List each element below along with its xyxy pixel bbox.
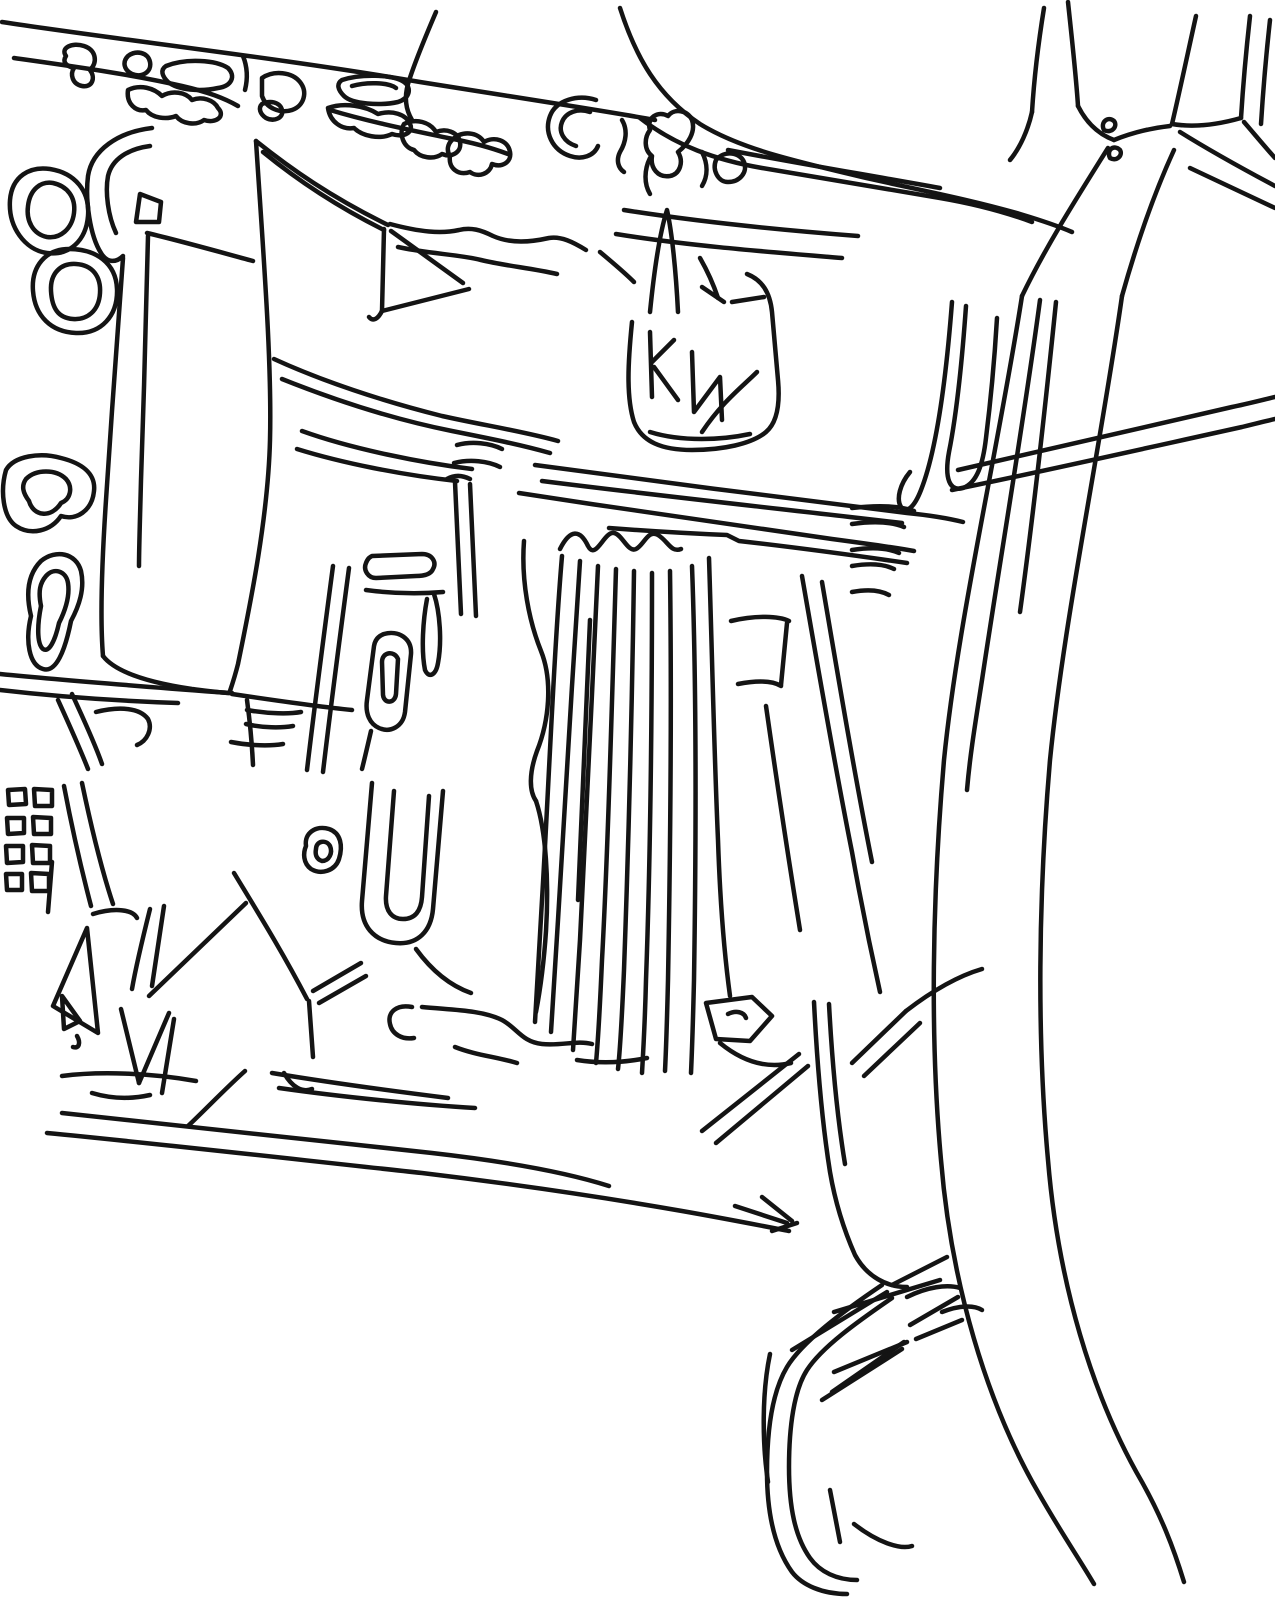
stroke-upper-left-hook-and-wedge-10 — [369, 311, 382, 319]
region-left-tree-blobs — [3, 455, 150, 769]
stroke-center-road-band-2 — [302, 431, 472, 469]
stroke-left-tree-blobs-6 — [96, 709, 150, 745]
stroke-bottom-long-roads-1 — [47, 1133, 789, 1231]
region-bottom-right-loop — [764, 1285, 982, 1594]
stroke-bottom-left-zigzags-3 — [73, 1036, 79, 1047]
stroke-small-buildings-grid-0 — [8, 789, 26, 805]
stroke-east-yard-block-6 — [781, 623, 787, 685]
stroke-center-road-band-1 — [282, 379, 550, 453]
stroke-right-mid-roads-0 — [958, 397, 1275, 470]
stroke-bottom-left-zigzags-10 — [234, 873, 307, 999]
stroke-right-sidings-upper-4 — [852, 590, 889, 595]
stroke-top-center-sweeping-road-0 — [620, 8, 1072, 232]
stroke-left-field-block-1 — [139, 236, 148, 566]
stroke-rail-fan-8 — [642, 573, 652, 1073]
stroke-center-left-structures-11 — [386, 791, 429, 919]
stroke-left-field-block-0 — [102, 258, 123, 656]
stroke-right-highway-3 — [1020, 302, 1056, 612]
stroke-bottom-left-zigzags-16 — [62, 1073, 196, 1081]
stroke-bottom-left-zigzags-11 — [309, 1001, 313, 1057]
stroke-bottom-right-sidings-3 — [916, 1320, 962, 1339]
stroke-yard-bottom-splays-5 — [720, 1043, 791, 1065]
stroke-top-strip-vegetation-2 — [162, 61, 232, 90]
stroke-upper-left-hook-and-wedge-11 — [382, 289, 469, 311]
stroke-center-left-structures-6 — [382, 653, 398, 701]
region-yard-bottom-splays — [706, 969, 982, 1076]
stroke-bottom-center-misc-3 — [455, 1047, 517, 1063]
stroke-top-strip-vegetation-8 — [352, 83, 396, 88]
stroke-building-cluster-5 — [652, 340, 674, 362]
stroke-building-cluster-4 — [650, 332, 652, 397]
stroke-small-buildings-grid-3 — [33, 817, 51, 834]
edge-traced-map-page — [0, 0, 1275, 1600]
stroke-left-tree-blobs-4 — [58, 700, 88, 769]
stroke-top-strip-vegetation-7 — [338, 76, 408, 104]
stroke-top-right-fork-13 — [1190, 168, 1275, 208]
region-rail-fan — [523, 533, 695, 1073]
stroke-upper-left-hook-and-wedge-3 — [147, 233, 253, 261]
stroke-bottom-right-loop-8 — [854, 1524, 912, 1547]
stroke-top-right-fork-6 — [1261, 20, 1270, 124]
stroke-center-left-structures-0 — [365, 554, 434, 578]
stroke-small-buildings-grid-1 — [34, 789, 52, 806]
stroke-top-strip-vegetation-1 — [125, 53, 151, 76]
stroke-east-yard-block-1 — [802, 576, 880, 992]
stroke-bottom-left-zigzags-2 — [62, 996, 80, 1029]
stroke-yard-bottom-splays-1 — [728, 1012, 746, 1018]
stroke-east-yard-block-5 — [738, 682, 781, 686]
stroke-yard-bottom-splays-2 — [852, 1011, 906, 1063]
region-small-buildings-grid — [6, 783, 113, 906]
stroke-yard-bottom-splays-3 — [864, 1023, 920, 1076]
stroke-small-buildings-grid-4 — [6, 846, 23, 863]
stroke-top-right-fork-1 — [1068, 2, 1078, 106]
stroke-bottom-left-zigzags-17 — [92, 1093, 150, 1098]
stroke-center-road-band-0 — [274, 359, 558, 441]
stroke-right-wiggle-verticals-0 — [899, 302, 952, 510]
stroke-bottom-long-roads-2 — [272, 1073, 448, 1098]
region-east-yard-block — [709, 558, 880, 996]
region-bottom-left-zigzags — [48, 862, 366, 1098]
stroke-center-left-structures-12 — [416, 949, 471, 993]
stroke-center-left-structures-5 — [367, 633, 411, 730]
stroke-left-field-block-7 — [246, 724, 293, 727]
stroke-top-right-fork-4 — [1172, 16, 1196, 124]
stroke-upper-left-hook-and-wedge-4 — [230, 141, 270, 691]
stroke-top-right-fork-8 — [1172, 118, 1241, 126]
stroke-left-tree-blobs-5 — [72, 694, 102, 764]
stroke-top-strip-vegetation-13 — [561, 110, 590, 146]
stroke-building-cluster-8 — [702, 372, 757, 432]
stroke-top-right-fork-14 — [1022, 148, 1108, 296]
stroke-left-field-block-8 — [231, 742, 283, 745]
stroke-left-field-block-6 — [247, 710, 301, 713]
stroke-top-right-fork-0 — [1032, 8, 1044, 112]
region-top-right-fork — [1010, 2, 1275, 296]
region-right-highway — [934, 296, 1184, 1584]
stroke-top-right-fork-2 — [1010, 112, 1032, 160]
stroke-left-tree-blobs-1 — [23, 472, 70, 514]
stroke-left-field-block-4 — [0, 690, 178, 703]
stroke-center-road-band-8 — [457, 443, 502, 449]
stroke-upper-left-hook-and-wedge-9 — [382, 229, 384, 311]
region-upper-left-hook-and-wedge — [87, 128, 586, 691]
stroke-rail-fan-7 — [618, 571, 634, 1069]
region-top-strip-road — [2, 12, 655, 154]
stroke-right-highway-1 — [1040, 296, 1184, 1582]
stroke-upper-left-hook-and-wedge-7 — [390, 224, 586, 250]
stroke-bottom-left-zigzags-15 — [48, 862, 52, 912]
stroke-left-tree-blobs-0 — [3, 455, 94, 531]
stroke-center-left-structures-9 — [316, 842, 331, 861]
stroke-bottom-long-roads-11 — [829, 1004, 845, 1164]
stroke-building-cluster-2 — [600, 252, 634, 282]
stroke-top-right-fork-10 — [1109, 148, 1121, 160]
stroke-left-field-block-3 — [0, 674, 229, 693]
stroke-bottom-right-loop-6 — [942, 1306, 982, 1312]
stroke-east-yard-block-3 — [766, 706, 800, 930]
stroke-top-strip-road-3 — [406, 12, 436, 120]
stroke-bottom-left-zigzags-14 — [319, 976, 366, 1003]
stroke-center-left-structures-7 — [362, 731, 371, 769]
stroke-east-yard-block-4 — [731, 617, 789, 621]
region-right-wiggle-verticals — [899, 302, 997, 510]
stroke-center-road-band-11 — [455, 482, 461, 614]
stroke-center-road-band-12 — [470, 484, 476, 616]
stroke-center-left-structures-2 — [423, 594, 440, 675]
stroke-east-yard-block-0 — [709, 558, 730, 996]
stroke-bottom-long-roads-0 — [62, 1113, 609, 1186]
stroke-left-double-rings-3 — [51, 264, 100, 319]
stroke-upper-left-hook-and-wedge-2 — [136, 194, 161, 222]
stroke-top-right-fork-5 — [1241, 16, 1250, 118]
stroke-rail-fan-10 — [691, 566, 696, 1073]
stroke-top-strip-vegetation-14 — [618, 120, 626, 172]
stroke-bottom-center-misc-2 — [577, 1058, 647, 1062]
stroke-yard-bottom-splays-0 — [706, 997, 772, 1041]
stroke-top-right-fork-11 — [1244, 122, 1275, 158]
stroke-top-strip-vegetation-16 — [646, 158, 651, 194]
region-bottom-center-misc — [389, 1006, 647, 1063]
stroke-center-road-band-10 — [447, 476, 470, 479]
region-bottom-long-roads — [47, 1002, 907, 1287]
stroke-bottom-center-misc-1 — [422, 1007, 592, 1044]
stroke-top-strip-vegetation-5 — [262, 73, 304, 111]
stroke-small-buildings-grid-5 — [32, 845, 50, 863]
stroke-top-right-fork-3 — [1078, 106, 1114, 140]
stroke-building-cluster-11 — [650, 432, 750, 439]
region-left-field-block — [0, 236, 352, 765]
stroke-small-buildings-grid-7 — [31, 873, 49, 891]
stroke-top-right-fork-9 — [1103, 119, 1115, 131]
stroke-rail-fan-9 — [665, 571, 671, 1071]
stroke-bottom-long-roads-8 — [702, 1054, 799, 1131]
stroke-bottom-left-zigzags-0 — [93, 910, 137, 918]
stroke-bottom-long-roads-10 — [814, 1002, 907, 1287]
stroke-rail-fan-6 — [596, 569, 616, 1063]
stroke-rail-fan-0 — [560, 533, 681, 550]
stroke-top-strip-vegetation-17 — [702, 152, 707, 186]
stroke-top-right-fork-15 — [1122, 150, 1174, 296]
stroke-bottom-left-zigzags-4 — [132, 909, 150, 989]
stroke-bottom-right-loop-7 — [830, 1490, 840, 1542]
stroke-small-buildings-grid-6 — [6, 874, 22, 890]
stroke-bottom-center-misc-0 — [389, 1006, 414, 1038]
stroke-bottom-left-zigzags-13 — [313, 963, 361, 991]
region-top-center-sweeping-road — [616, 8, 1072, 258]
stroke-bottom-long-roads-9 — [716, 1066, 808, 1143]
stroke-building-cluster-6 — [654, 367, 678, 400]
stroke-building-cluster-1 — [650, 210, 678, 312]
stroke-top-strip-vegetation-3 — [243, 56, 247, 90]
stroke-left-double-rings-1 — [28, 183, 75, 238]
stroke-center-left-structures-8 — [304, 828, 341, 872]
stroke-left-tree-blobs-3 — [38, 571, 68, 650]
stroke-center-left-structures-1 — [366, 590, 443, 593]
edge-map-canvas — [0, 0, 1275, 1600]
stroke-bottom-left-zigzags-5 — [152, 906, 164, 986]
stroke-rail-fan-1 — [523, 541, 548, 801]
stroke-top-center-sweeping-road-4 — [616, 234, 842, 258]
stroke-building-cluster-9 — [732, 297, 764, 302]
stroke-right-sidings-upper-3 — [852, 564, 894, 569]
stroke-center-road-band-5 — [542, 481, 902, 523]
region-center-left-structures — [304, 554, 471, 993]
stroke-top-right-fork-7 — [1114, 126, 1170, 140]
stroke-upper-left-hook-and-wedge-5 — [256, 141, 388, 225]
stroke-yard-bottom-splays-4 — [906, 969, 982, 1011]
stroke-small-buildings-grid-2 — [7, 818, 24, 834]
